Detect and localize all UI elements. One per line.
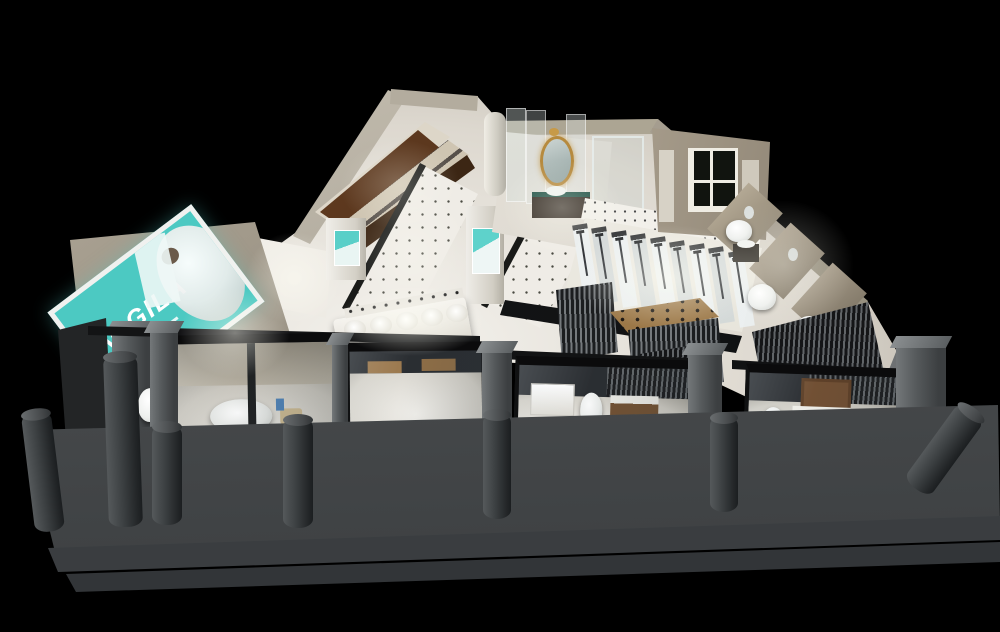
round-mirror [788,248,798,261]
vanity-basin [546,186,566,196]
showroom-render: GGILA [0,0,1000,632]
round-mirror [744,206,754,219]
bollard [483,413,511,519]
bollard [710,416,738,512]
bollard [152,425,182,525]
blue-towel [276,398,284,410]
white-vanity-cabinet [530,383,575,416]
room-back-wall [171,342,336,387]
wood-mirror [800,378,851,412]
teal-poster [472,228,500,274]
wood-bench [422,359,456,371]
teal-poster [334,230,360,266]
white-column [484,112,506,196]
wash-basin [370,316,392,334]
wash-basin [446,304,468,322]
dark-vanity [532,192,590,218]
wash-basin [421,308,443,326]
luxury-glass-wall [506,108,526,202]
wash-basin [396,312,418,330]
bollard [103,354,143,527]
gold-mirror-crown [549,128,559,136]
window-room-cabinet [659,150,674,222]
display-toilet [748,284,776,310]
wood-bench [368,361,402,373]
gold-baroque-mirror [540,136,574,186]
bollard [283,418,313,528]
basin-on-cabinet [737,240,755,248]
display-toilet [726,220,752,242]
